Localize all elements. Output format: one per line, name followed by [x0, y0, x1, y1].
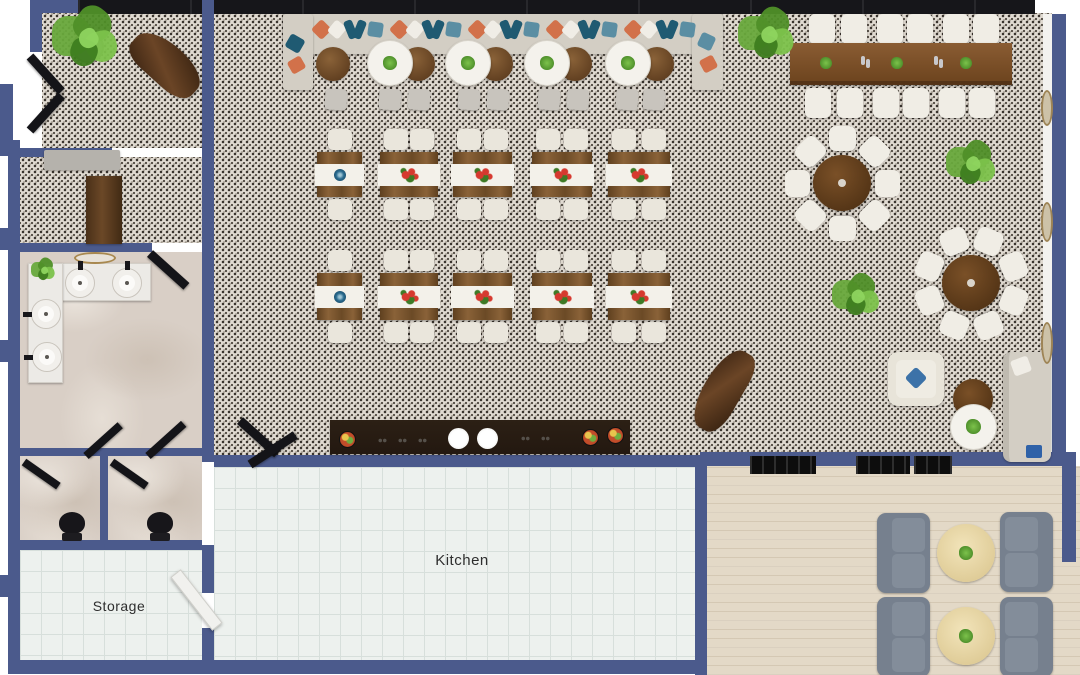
storefront-window-band — [78, 0, 1035, 14]
table-plant-icon — [960, 57, 972, 69]
banquette-return-right — [692, 14, 723, 90]
cafe-table-brown — [316, 47, 350, 81]
dining-chair — [410, 129, 434, 150]
dining-chair — [328, 322, 352, 343]
round-table-center — [967, 279, 975, 287]
flower-centerpiece — [628, 289, 650, 305]
console-cabinet — [86, 176, 122, 244]
pillow-blue-icon — [601, 21, 618, 38]
dining-chair — [484, 250, 508, 271]
utensil-icon — [541, 436, 550, 441]
flower-centerpiece — [472, 167, 494, 183]
communal-chair — [973, 14, 999, 44]
wall-left-stub-c — [0, 340, 9, 362]
stool — [537, 88, 560, 110]
dining-chair — [384, 199, 408, 220]
dining-chair — [612, 129, 636, 150]
communal-chair — [809, 14, 835, 44]
wall-stalls-top — [20, 448, 202, 456]
flower-centerpiece — [551, 289, 573, 305]
utensil-icon — [521, 436, 530, 441]
wall-art-oval-icon — [1041, 202, 1053, 242]
table-plant-icon — [461, 56, 475, 70]
pillow-blue-icon — [367, 21, 384, 38]
communal-chair — [969, 88, 995, 118]
hall-bench — [44, 150, 120, 170]
patio-loveseat-cushion — [892, 638, 925, 672]
storage-label: Storage — [59, 598, 179, 614]
sink-drain-icon — [78, 281, 82, 285]
communal-chair — [943, 14, 969, 44]
wall-left-stub-a — [0, 84, 13, 156]
bifold-door — [856, 456, 910, 474]
bowl-centerpiece — [334, 169, 346, 181]
dining-chair — [564, 322, 588, 343]
patio-loveseat-cushion — [1005, 517, 1038, 551]
table-plant-icon — [966, 419, 981, 434]
dining-chair — [328, 129, 352, 150]
pillow-blue-icon — [523, 21, 540, 38]
communal-chair — [903, 88, 929, 118]
dining-chair — [612, 250, 636, 271]
dining-chair — [410, 250, 434, 271]
communal-chair — [805, 88, 831, 118]
wall-storage-right-a — [202, 545, 214, 593]
sink-drain-icon — [125, 281, 129, 285]
flower-centerpiece — [628, 167, 650, 183]
bottle-icon — [939, 59, 943, 68]
table-plant-icon — [540, 56, 554, 70]
patio-loveseat-cushion — [1005, 638, 1038, 672]
stool — [407, 88, 430, 110]
patio-loveseat-cushion — [1005, 602, 1038, 636]
wall-vestibule-left — [30, 0, 42, 52]
dining-chair — [457, 129, 481, 150]
dining-chair — [536, 322, 560, 343]
toilet — [59, 512, 85, 534]
wall-divider — [202, 0, 214, 462]
table-plant-icon — [820, 57, 832, 69]
table-plant-icon — [959, 546, 973, 560]
bifold-door — [914, 456, 952, 474]
round-table-center — [838, 179, 846, 187]
wall-art-oval-icon — [1041, 322, 1053, 364]
wall-art-oval-icon — [1041, 90, 1053, 126]
wall-kitchen-right — [695, 455, 707, 675]
patio-loveseat-cushion — [892, 554, 925, 588]
dining-chair — [612, 322, 636, 343]
wall-kitchen-top — [214, 455, 700, 467]
stool — [642, 88, 665, 110]
dining-chair — [457, 250, 481, 271]
dining-chair — [384, 129, 408, 150]
wall-storage-top — [8, 540, 202, 550]
table-plant-icon — [621, 56, 635, 70]
pillow-blue-icon — [1026, 445, 1042, 458]
stool — [566, 88, 589, 110]
faucet-icon — [125, 261, 130, 270]
round-table-chair — [829, 216, 856, 241]
dining-chair — [642, 199, 666, 220]
dining-chair — [564, 129, 588, 150]
table-plant-icon — [891, 57, 903, 69]
dining-chair — [484, 322, 508, 343]
dining-chair — [564, 199, 588, 220]
dining-chair — [457, 322, 481, 343]
stool — [324, 88, 347, 110]
faucet-icon — [78, 261, 83, 270]
communal-chair — [837, 88, 863, 118]
stool — [378, 88, 401, 110]
table-plant-icon — [959, 629, 973, 643]
dining-chair — [328, 199, 352, 220]
patio-loveseat-cushion — [892, 518, 925, 552]
patio-loveseat-cushion — [1005, 553, 1038, 587]
round-table-chair — [875, 170, 900, 197]
toilet — [147, 512, 173, 534]
utensil-icon — [378, 438, 387, 443]
communal-chair — [841, 14, 867, 44]
dining-chair — [457, 199, 481, 220]
dining-chair — [384, 322, 408, 343]
pillow-blue-icon — [679, 21, 696, 38]
wall-right — [1052, 14, 1066, 466]
bowl-centerpiece — [334, 291, 346, 303]
wall-restroom-top — [8, 243, 152, 252]
white-plate-icon — [448, 428, 469, 449]
pillow-blue-icon — [445, 21, 462, 38]
flower-centerpiece — [472, 289, 494, 305]
communal-chair — [939, 88, 965, 118]
dining-chair — [642, 322, 666, 343]
round-table-chair — [829, 126, 856, 151]
flower-centerpiece — [551, 167, 573, 183]
dining-chair — [484, 129, 508, 150]
sink-drain-icon — [44, 312, 48, 316]
bottle-icon — [861, 56, 865, 65]
toilet-tank — [62, 533, 82, 541]
faucet-icon — [23, 312, 32, 317]
dining-chair — [642, 129, 666, 150]
dining-chair — [642, 250, 666, 271]
dining-chair — [536, 250, 560, 271]
dining-chair — [384, 250, 408, 271]
flower-centerpiece — [398, 167, 420, 183]
communal-chair — [907, 14, 933, 44]
stool — [486, 88, 509, 110]
toilet-tank — [150, 533, 170, 541]
stool — [615, 88, 638, 110]
dining-chair — [484, 199, 508, 220]
white-plate-icon — [477, 428, 498, 449]
dining-chair — [410, 322, 434, 343]
floor-plan-stage: Kitchen Storage — [0, 0, 1080, 675]
bottle-icon — [866, 59, 870, 68]
food-plate-icon — [607, 427, 624, 444]
stool — [457, 88, 480, 110]
bottle-icon — [934, 56, 938, 65]
round-table-chair — [785, 170, 810, 197]
sink-drain-icon — [45, 355, 49, 359]
food-plate-icon — [339, 431, 356, 448]
communal-chair — [873, 88, 899, 118]
dining-chair — [328, 250, 352, 271]
utensil-icon — [418, 438, 427, 443]
patio-loveseat-cushion — [892, 602, 925, 636]
dining-chair — [536, 199, 560, 220]
communal-chair — [877, 14, 903, 44]
wall-bottom — [8, 660, 707, 674]
wall-left — [8, 140, 20, 668]
dining-chair — [410, 199, 434, 220]
table-plant-icon — [383, 56, 397, 70]
faucet-icon — [24, 355, 33, 360]
dining-chair — [564, 250, 588, 271]
flower-centerpiece — [398, 289, 420, 305]
dining-chair — [536, 129, 560, 150]
wall-left-stub-d — [0, 575, 9, 597]
utensil-icon — [398, 438, 407, 443]
food-plate-icon — [582, 429, 599, 446]
bifold-door — [750, 456, 816, 474]
dining-chair — [612, 199, 636, 220]
kitchen-label: Kitchen — [382, 552, 542, 569]
wall-stall-divider — [100, 448, 108, 545]
wall-patio-right — [1062, 452, 1076, 562]
